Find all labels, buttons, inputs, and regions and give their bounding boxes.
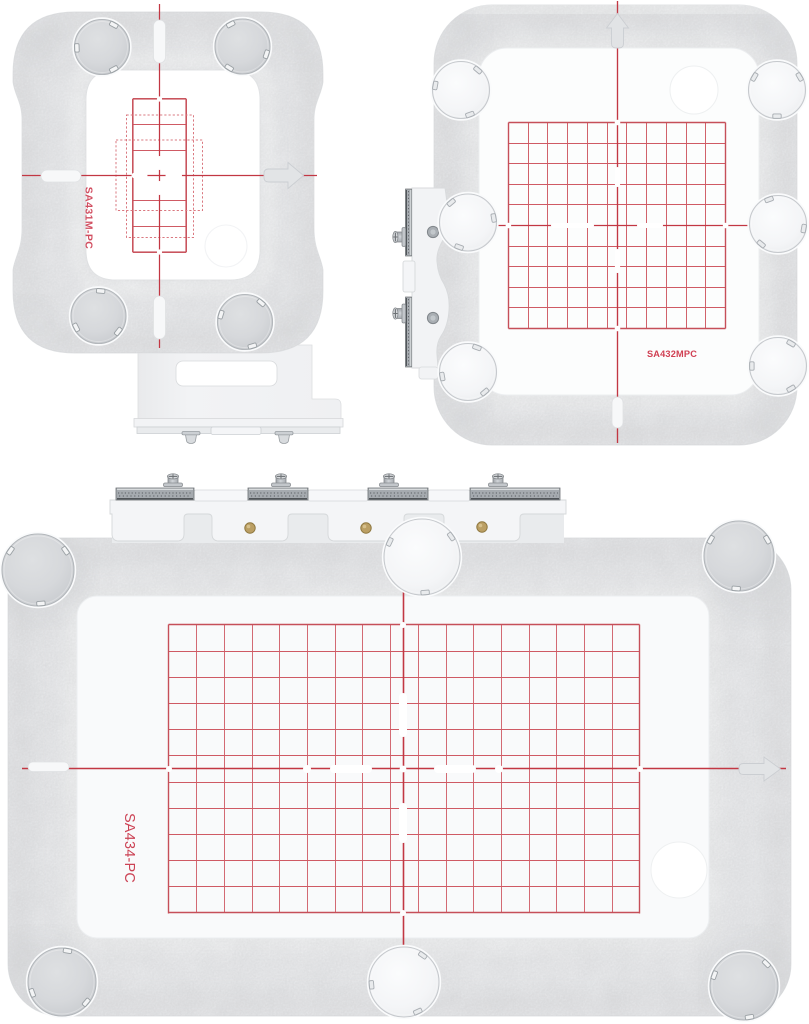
- svg-text:SA432MPC: SA432MPC: [647, 349, 697, 359]
- svg-text:SA434-PC: SA434-PC: [121, 813, 137, 883]
- svg-text:SA431M-PC: SA431M-PC: [83, 187, 95, 250]
